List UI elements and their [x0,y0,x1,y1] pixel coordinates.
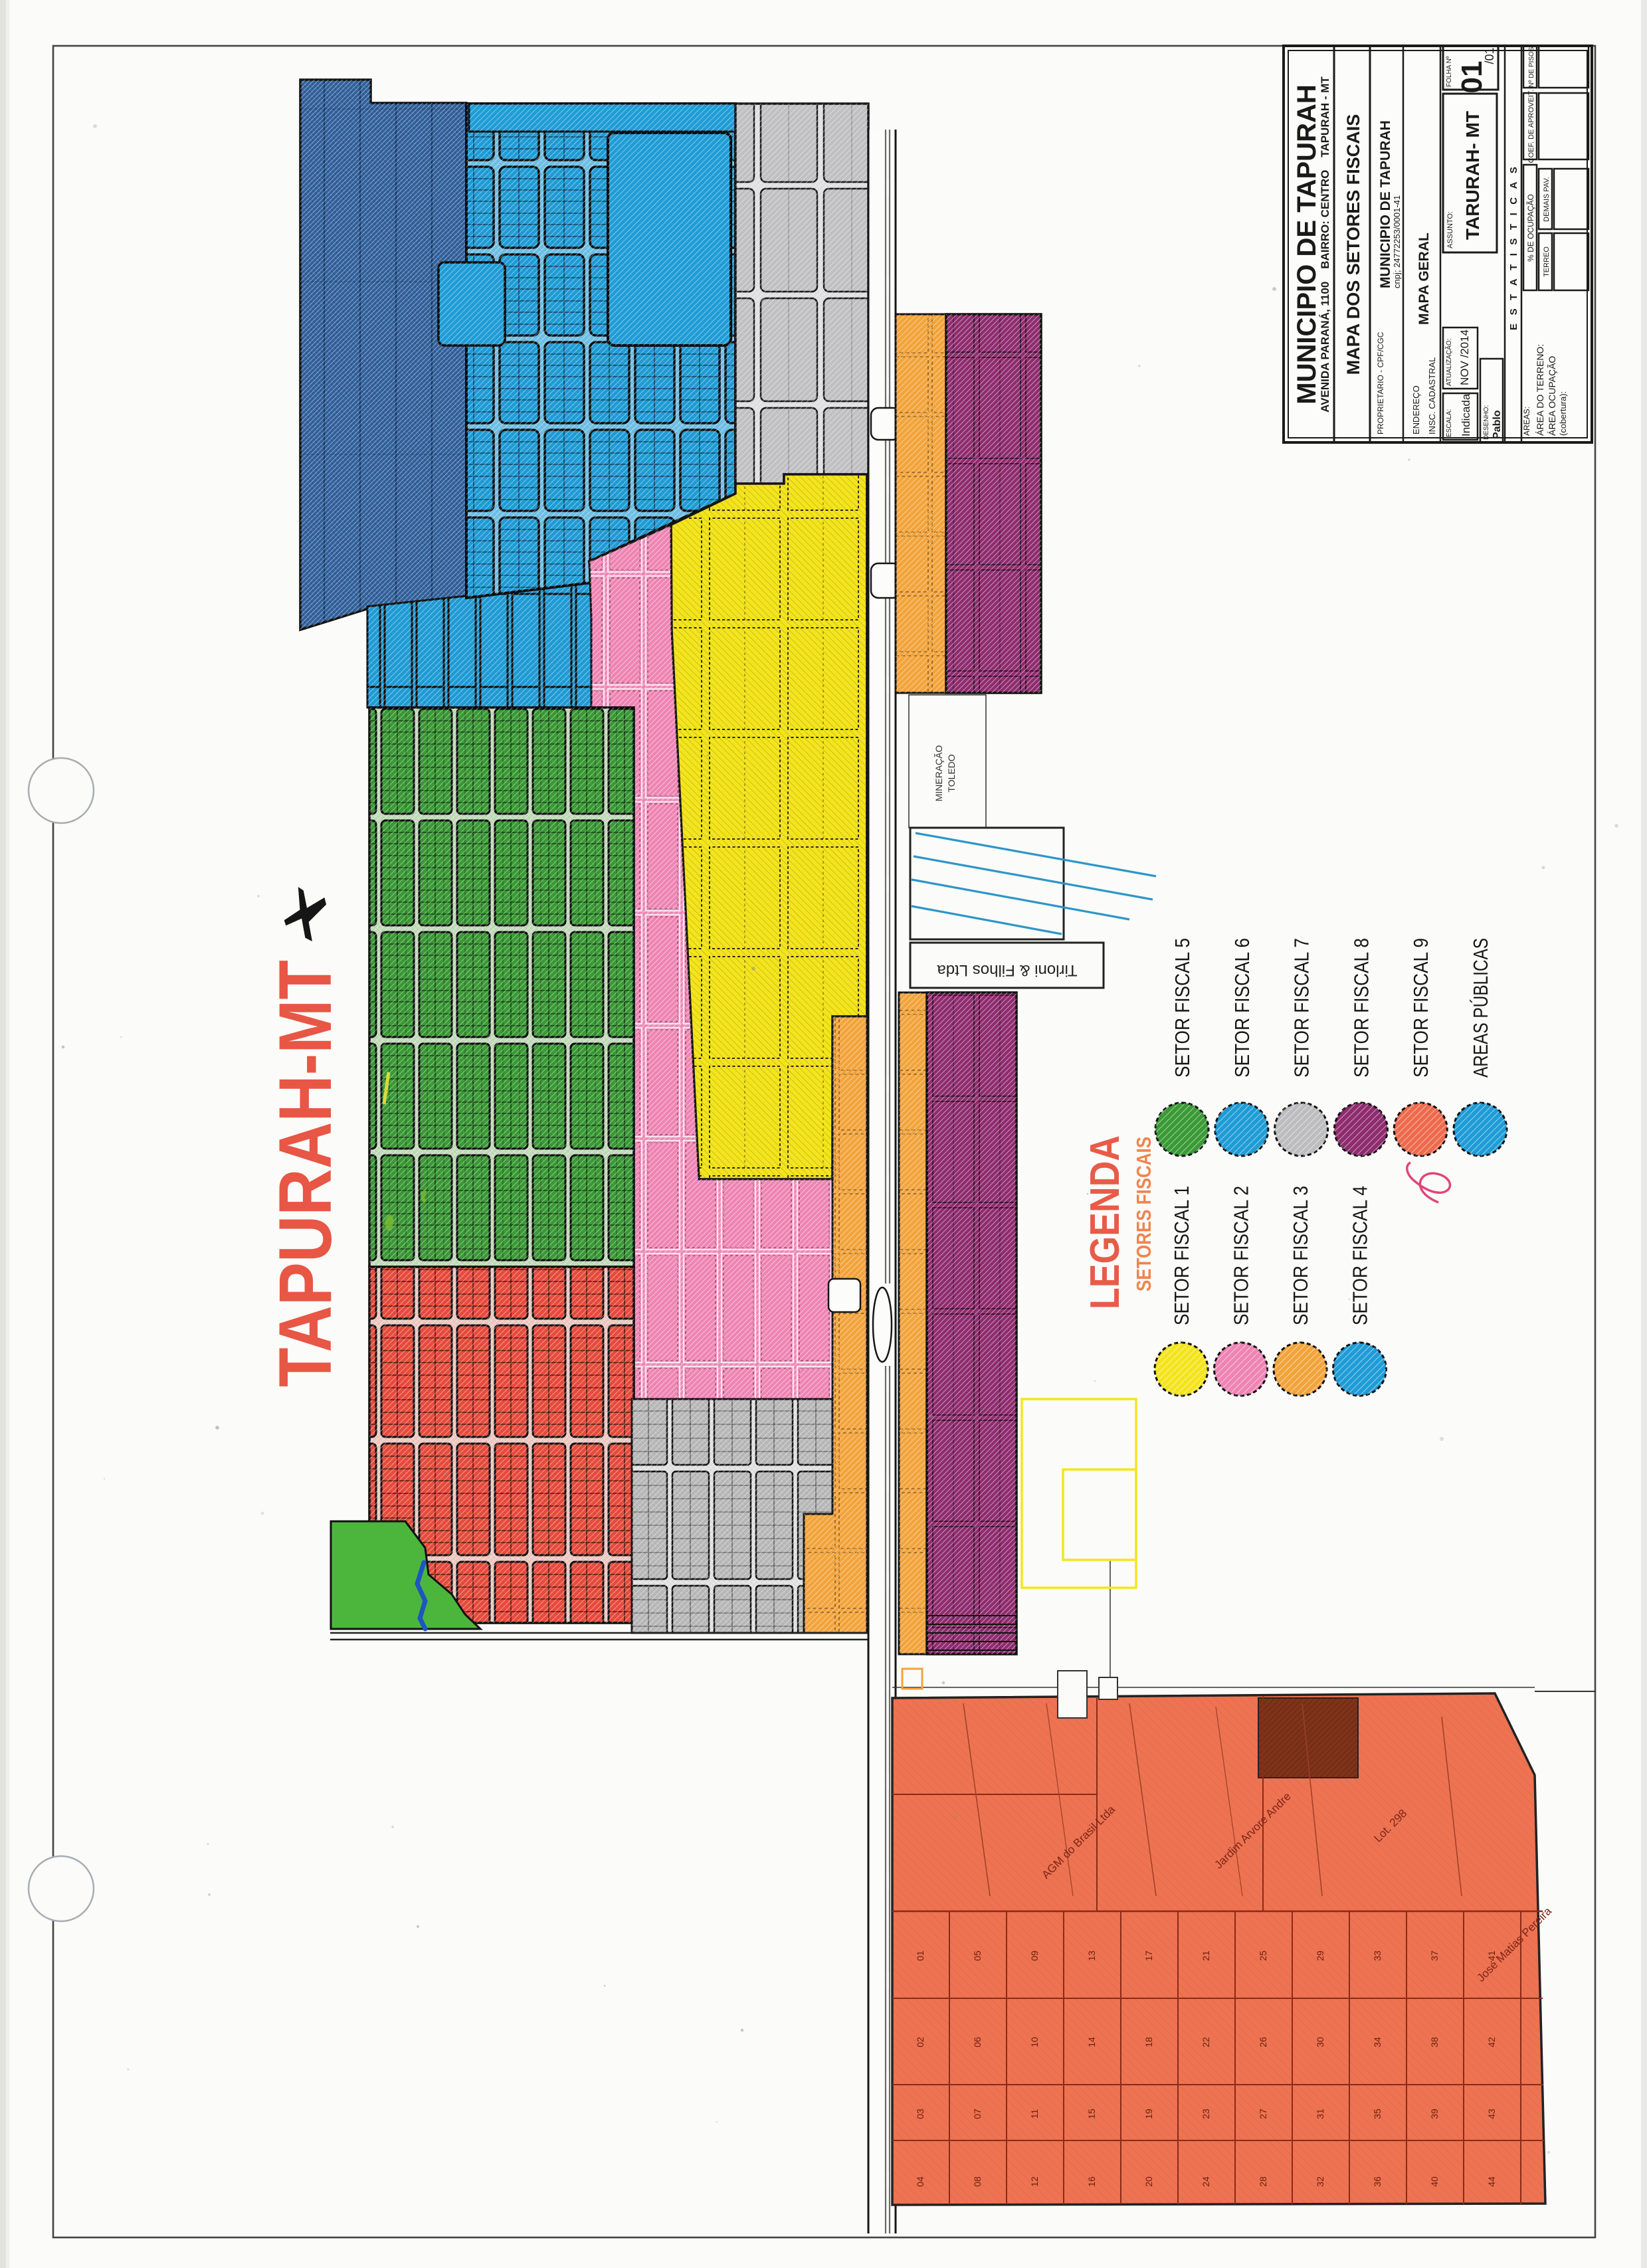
svg-text:24: 24 [1201,2176,1211,2187]
svg-text:38: 38 [1429,2037,1440,2047]
svg-text:/01: /01 [1483,47,1496,64]
svg-text:19: 19 [1143,2109,1154,2119]
svg-text:% DE OCUPAÇÃO: % DE OCUPAÇÃO [1526,194,1535,262]
svg-text:SETOR FISCAL 5: SETOR FISCAL 5 [1171,938,1194,1078]
svg-text:07: 07 [972,2109,983,2119]
svg-text:04: 04 [915,2176,925,2187]
svg-text:(cobertura):: (cobertura): [1558,391,1568,436]
svg-text:cnpj; 24772253/0001-41: cnpj; 24772253/0001-41 [1392,195,1402,288]
svg-text:Nº DE PISOS: Nº DE PISOS [1528,47,1535,87]
svg-text:35: 35 [1372,2109,1383,2119]
svg-text:26: 26 [1258,2037,1268,2047]
svg-text:INSC. CADASTRAL: INSC. CADASTRAL [1427,357,1437,434]
svg-text:01: 01 [915,1950,925,1961]
svg-text:ASSUNTO:: ASSUNTO: [1446,211,1454,248]
svg-text:01: 01 [1456,61,1488,94]
svg-text:TARURAH- MT: TARURAH- MT [1462,111,1483,240]
svg-text:TERREO: TERREO [1543,246,1551,277]
svg-text:MUNICIPIO DE TAPURAH: MUNICIPIO DE TAPURAH [1378,120,1393,288]
svg-text:32: 32 [1315,2176,1325,2187]
svg-text:TAPURAH-MT: TAPURAH-MT [264,960,347,1387]
svg-text:NOV /2014: NOV /2014 [1458,330,1471,385]
svg-text:23: 23 [1201,2109,1211,2119]
svg-text:MINERAÇÃO: MINERAÇÃO [933,745,944,802]
svg-text:05: 05 [972,1950,983,1961]
svg-text:10: 10 [1029,2037,1040,2047]
svg-text:DEMAIS PAV.: DEMAIS PAV. [1543,177,1551,222]
svg-text:SETOR FISCAL 7: SETOR FISCAL 7 [1290,938,1313,1078]
svg-text:COEF. DE APROVEIT.: COEF. DE APROVEIT. [1527,90,1535,163]
svg-text:34: 34 [1372,2037,1383,2047]
svg-text:MUNICIPIO DE TAPURAH: MUNICIPIO DE TAPURAH [1292,84,1321,404]
svg-text:40: 40 [1429,2176,1440,2187]
svg-text:AVENIDA PARANÁ, 1100 BAIRRO: AVENIDA PARANÁ, 1100 BAIRRO: CENTRO TAPU… [1319,76,1331,413]
svg-text:03: 03 [915,2109,925,2119]
svg-text:02: 02 [915,2037,925,2047]
svg-text:SETOR FISCAL 2: SETOR FISCAL 2 [1230,1186,1253,1325]
svg-text:18: 18 [1143,2037,1154,2047]
svg-text:42: 42 [1486,2037,1497,2047]
svg-text:29: 29 [1315,1950,1325,1961]
svg-text:Pablo: Pablo [1492,410,1503,439]
svg-text:43: 43 [1486,2109,1497,2119]
svg-text:AREAS PÚBLICAS: AREAS PÚBLICAS [1469,938,1492,1078]
svg-text:13: 13 [1086,1950,1097,1961]
svg-text:MAPA DOS SETORES FISCAIS: MAPA DOS SETORES FISCAIS [1343,114,1363,375]
svg-text:ENDEREÇO: ENDEREÇO [1411,385,1421,434]
svg-text:ESCALA:: ESCALA: [1446,409,1453,437]
svg-text:SETORES FISCAIS: SETORES FISCAIS [1132,1137,1155,1291]
svg-text:MAPA GERAL: MAPA GERAL [1416,233,1432,325]
svg-text:39: 39 [1429,2109,1440,2119]
svg-text:SETOR FISCAL 4: SETOR FISCAL 4 [1349,1186,1372,1325]
svg-text:Tirloni & Filhos Ltda: Tirloni & Filhos Ltda [937,961,1078,979]
svg-text:SETOR FISCAL 9: SETOR FISCAL 9 [1409,938,1432,1078]
svg-text:11: 11 [1029,2109,1040,2119]
svg-text:AREAS:: AREAS: [1522,407,1531,436]
svg-text:LEGENDA: LEGENDA [1082,1135,1128,1309]
svg-text:FOLHA Nº: FOLHA Nº [1446,56,1453,87]
svg-text:PROPRIETARIO - CPF/CGC: PROPRIETARIO - CPF/CGC [1376,331,1385,434]
svg-text:36: 36 [1372,2176,1383,2187]
svg-text:21: 21 [1201,1950,1211,1961]
svg-text:SETOR FISCAL 1: SETOR FISCAL 1 [1170,1186,1193,1325]
svg-text:31: 31 [1315,2109,1325,2119]
svg-text:ÁREA DO TERRENO:: ÁREA DO TERRENO: [1535,344,1545,436]
svg-text:12: 12 [1029,2176,1040,2187]
svg-text:TOLEDO: TOLEDO [946,754,957,792]
svg-text:08: 08 [972,2176,983,2187]
svg-text:SETOR FISCAL 3: SETOR FISCAL 3 [1289,1186,1312,1325]
svg-text:14: 14 [1086,2037,1097,2047]
svg-text:06: 06 [972,2037,983,2047]
svg-text:33: 33 [1372,1950,1383,1961]
svg-text:28: 28 [1258,2176,1268,2187]
svg-text:Indicada: Indicada [1460,393,1472,436]
svg-text:37: 37 [1429,1950,1440,1961]
svg-text:16: 16 [1086,2176,1097,2187]
svg-text:ATUALIZAÇÃO:: ATUALIZAÇÃO: [1444,339,1453,387]
svg-text:27: 27 [1258,2109,1268,2119]
svg-text:25: 25 [1258,1950,1268,1961]
svg-text:09: 09 [1029,1950,1040,1961]
svg-text:SETOR FISCAL 6: SETOR FISCAL 6 [1230,938,1254,1078]
svg-text:22: 22 [1201,2037,1211,2047]
svg-text:44: 44 [1486,2176,1497,2187]
svg-text:30: 30 [1315,2037,1325,2047]
svg-text:SETOR FISCAL 8: SETOR FISCAL 8 [1349,938,1373,1078]
svg-text:20: 20 [1143,2176,1154,2187]
svg-text:DESENHO:: DESENHO: [1483,405,1490,440]
svg-text:E S T A T I S T: E S T A T I S T I C A S [1508,167,1519,330]
svg-text:17: 17 [1143,1950,1154,1961]
svg-text:ÁREA OCUPAÇÃO: ÁREA OCUPAÇÃO [1547,356,1557,436]
